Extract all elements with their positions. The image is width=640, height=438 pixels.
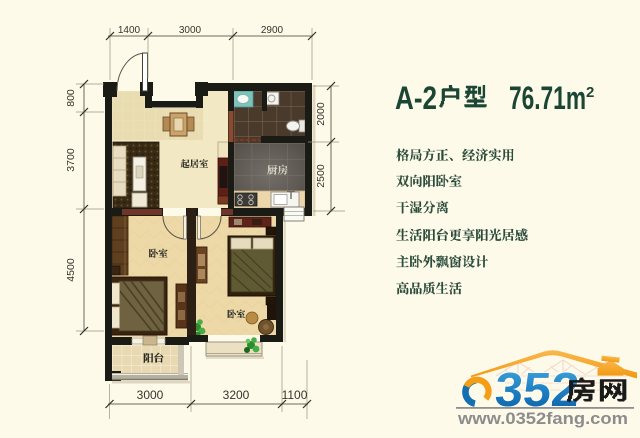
svg-text:2: 2 <box>586 84 594 101</box>
svg-text:3000: 3000 <box>137 388 164 402</box>
svg-text:4500: 4500 <box>65 258 77 282</box>
svg-text:2500: 2500 <box>315 164 327 188</box>
svg-text:www.0352fang.com: www.0352fang.com <box>457 409 628 428</box>
svg-text:2000: 2000 <box>315 102 327 126</box>
svg-text:1100: 1100 <box>282 388 308 402</box>
svg-text:2900: 2900 <box>261 25 284 36</box>
svg-text:3200: 3200 <box>223 388 250 402</box>
svg-text:3000: 3000 <box>179 25 202 36</box>
svg-text:3700: 3700 <box>65 148 77 172</box>
svg-text:76.71m: 76.71m <box>509 80 586 116</box>
svg-text:1400: 1400 <box>118 25 141 36</box>
svg-text:A-2: A-2 <box>395 80 437 116</box>
svg-text:800: 800 <box>65 89 77 107</box>
